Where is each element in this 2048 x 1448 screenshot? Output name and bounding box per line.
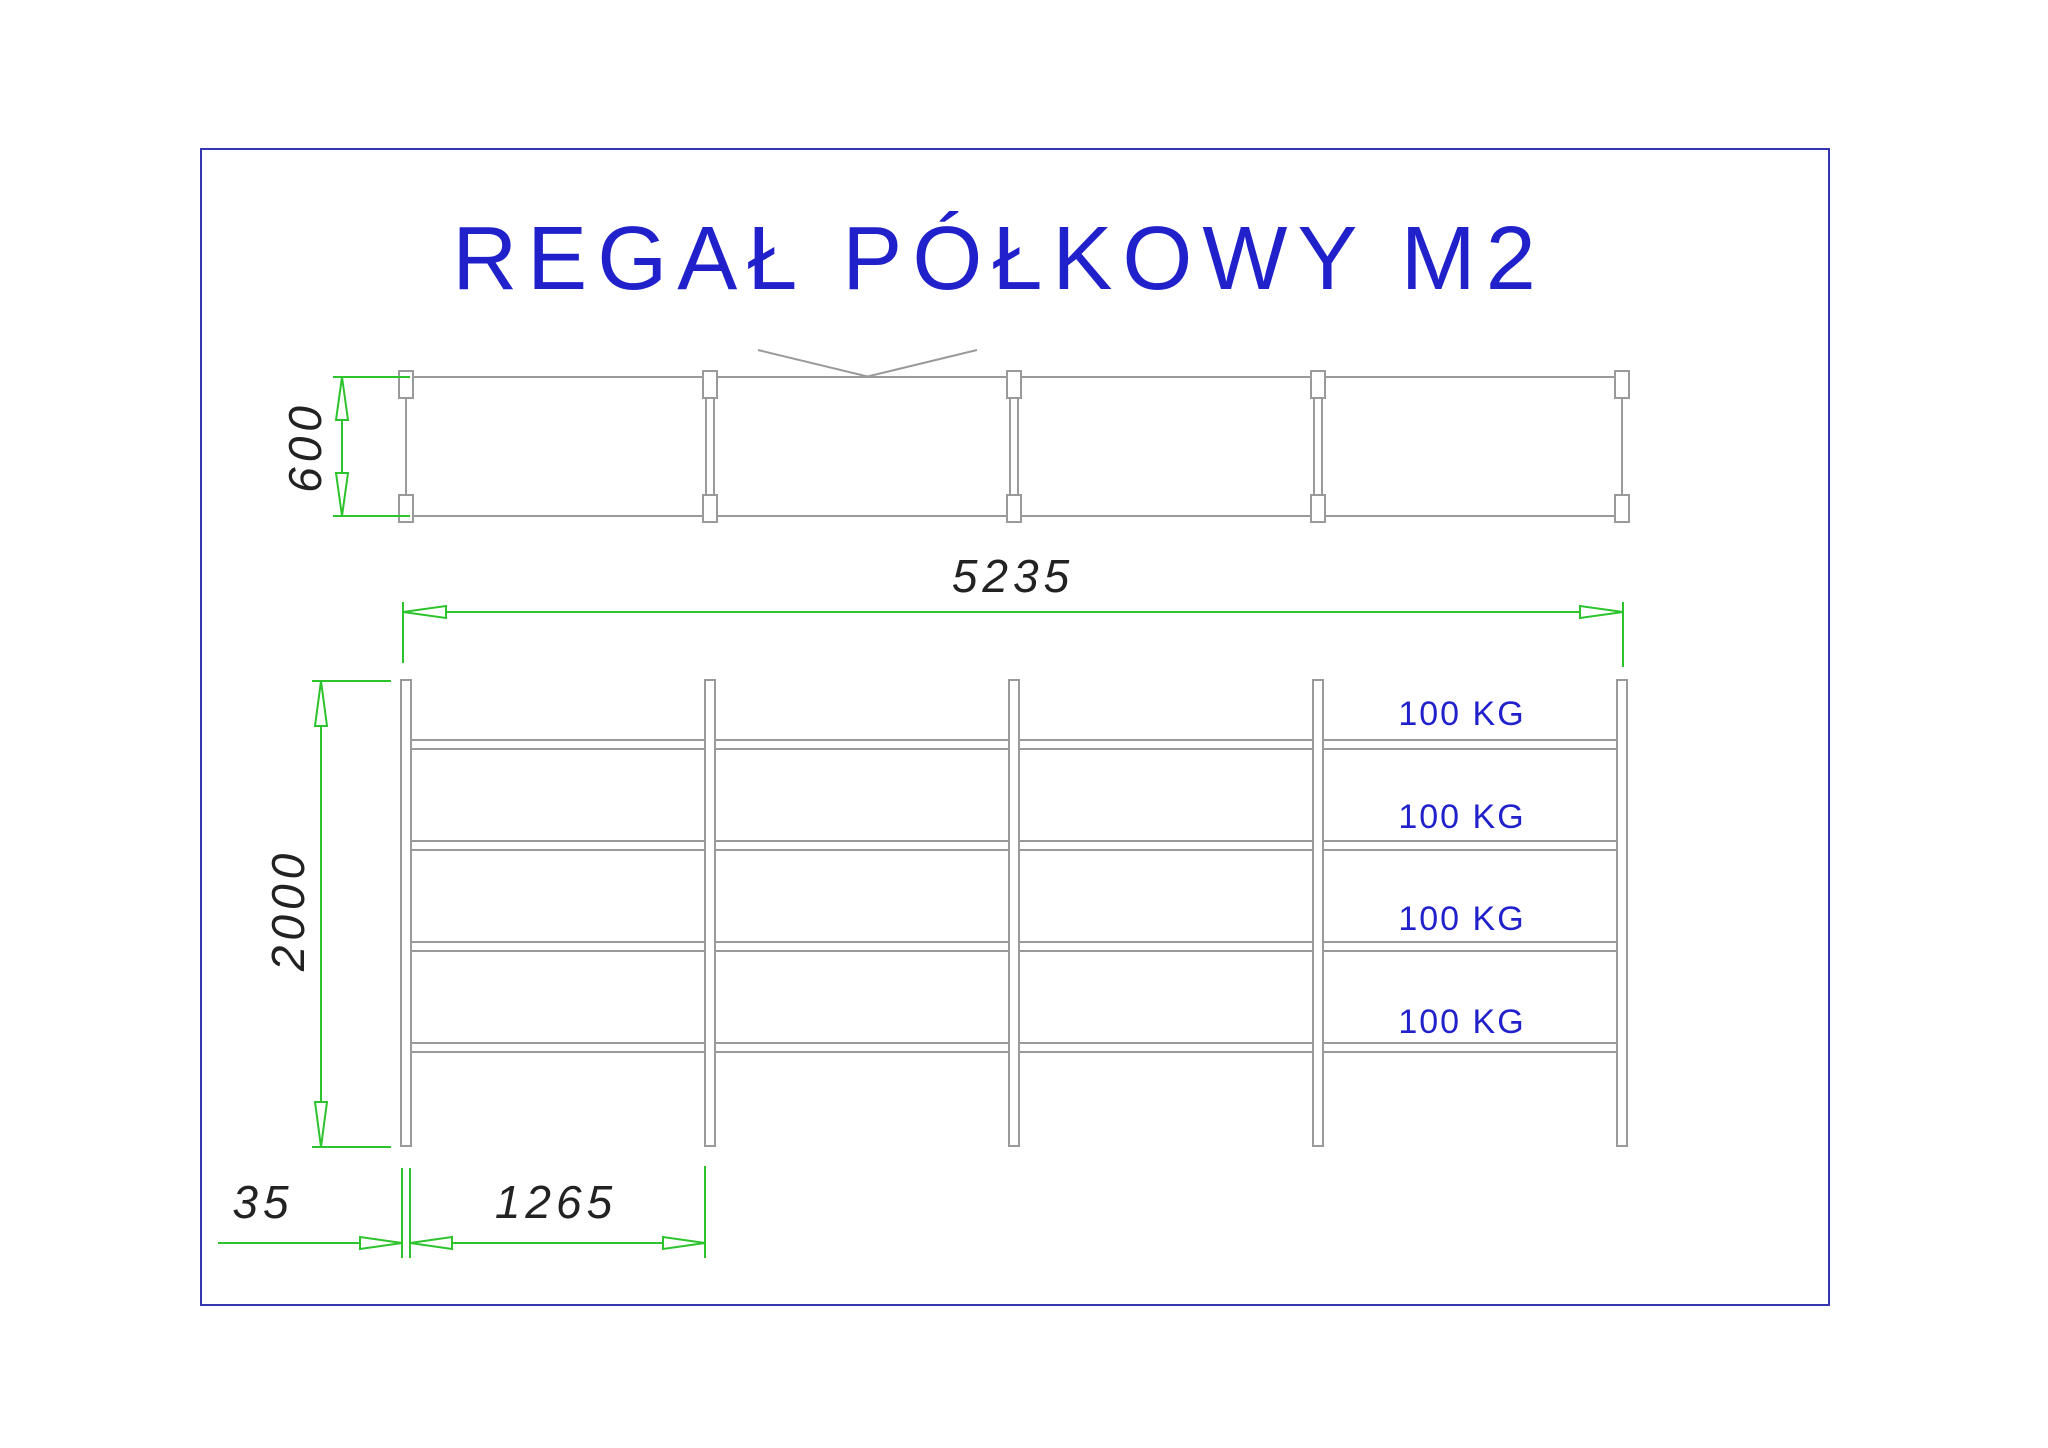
top-view xyxy=(399,350,1629,522)
shelf-load-label: 100 KG xyxy=(1398,1005,1525,1039)
dim-height-text: 2000 xyxy=(265,849,311,971)
drawing-sheet: REGAŁ PÓŁKOWY M2 xyxy=(0,0,2048,1448)
shelf-load-label: 100 KG xyxy=(1398,800,1525,834)
dim-total-width xyxy=(403,602,1623,667)
dim-height xyxy=(312,681,391,1147)
rack-linework xyxy=(0,0,2048,1448)
dim-post-width-text: 35 xyxy=(232,1179,293,1225)
dim-total-width-text: 5235 xyxy=(952,553,1074,599)
shelf-load-label: 100 KG xyxy=(1398,697,1525,731)
dim-depth-text: 600 xyxy=(282,401,328,493)
dim-bay-width-text: 1265 xyxy=(495,1179,617,1225)
shelf-load-label: 100 KG xyxy=(1398,902,1525,936)
